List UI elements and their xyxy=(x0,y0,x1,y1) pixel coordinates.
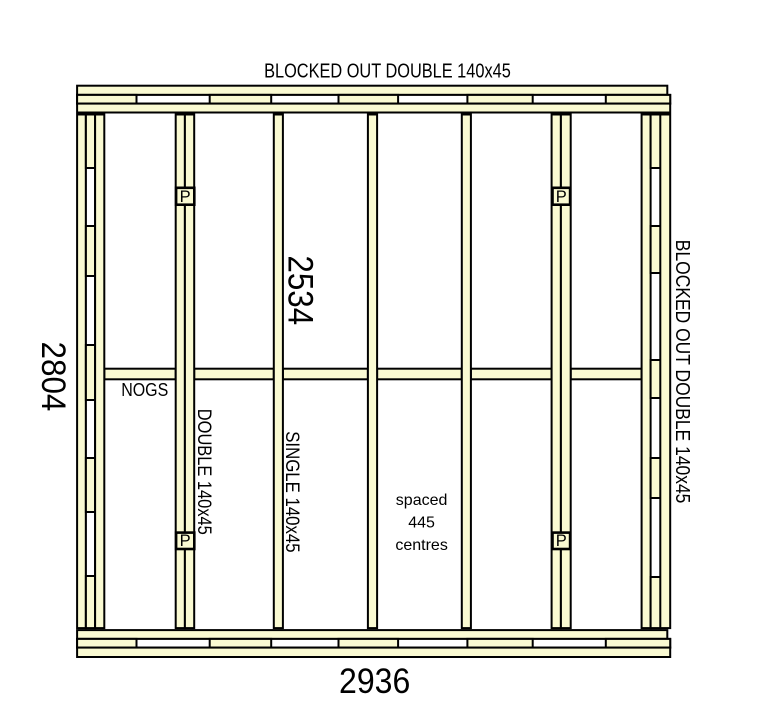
svg-text:BLOCKED OUT DOUBLE 140x45: BLOCKED OUT DOUBLE 140x45 xyxy=(671,240,693,504)
svg-text:BLOCKED OUT DOUBLE 140x45: BLOCKED OUT DOUBLE 140x45 xyxy=(264,61,511,83)
svg-text:spaced: spaced xyxy=(396,492,448,509)
svg-text:P: P xyxy=(180,532,191,550)
svg-text:P: P xyxy=(180,188,191,206)
svg-text:2804: 2804 xyxy=(34,342,72,412)
svg-text:445: 445 xyxy=(408,515,435,532)
svg-text:centres: centres xyxy=(395,537,447,554)
svg-text:NOGS: NOGS xyxy=(121,380,168,400)
svg-text:P: P xyxy=(556,188,567,206)
svg-text:SINGLE 140x45: SINGLE 140x45 xyxy=(281,431,302,552)
svg-text:P: P xyxy=(556,532,567,550)
svg-text:2936: 2936 xyxy=(339,662,410,701)
svg-text:DOUBLE 140x45: DOUBLE 140x45 xyxy=(193,409,214,535)
svg-text:2534: 2534 xyxy=(280,255,319,325)
